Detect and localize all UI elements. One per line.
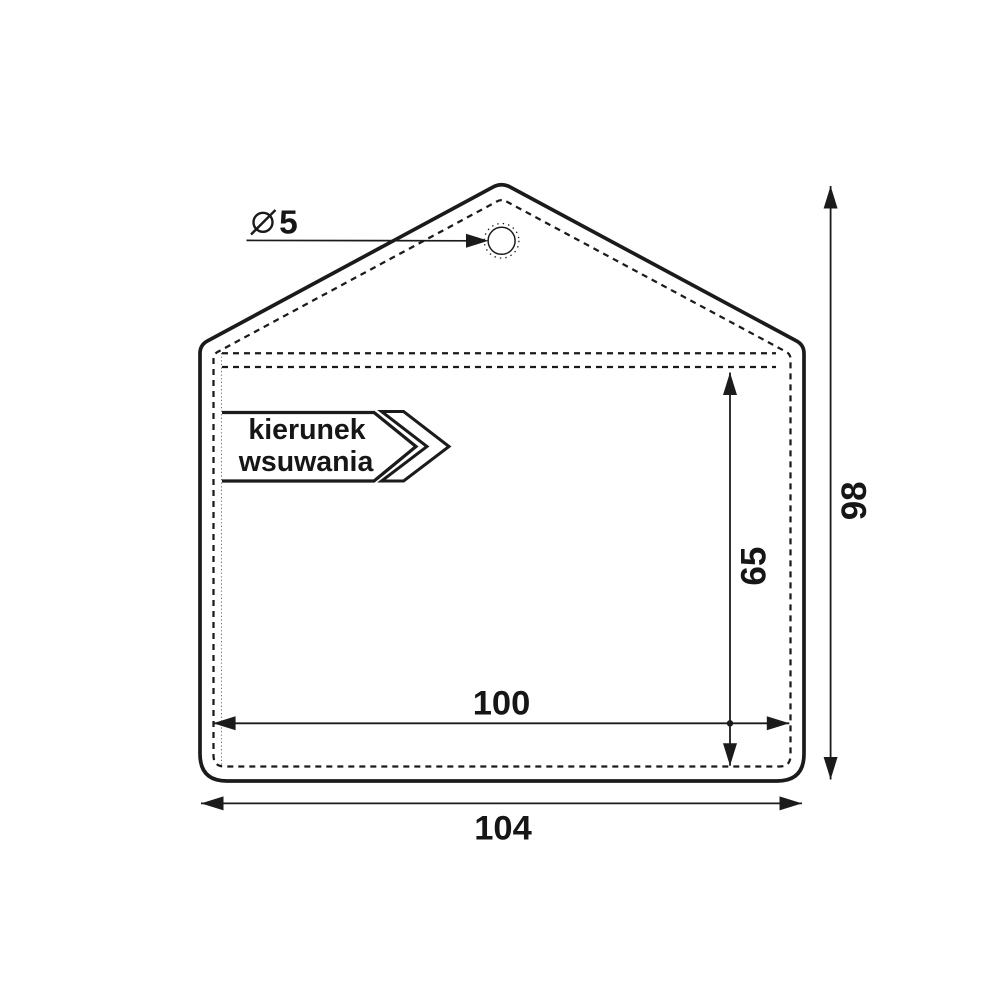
svg-text:65: 65 <box>734 547 773 586</box>
svg-text:kierunek: kierunek <box>248 414 365 446</box>
svg-text:100: 100 <box>473 685 531 723</box>
svg-text:98: 98 <box>835 481 874 520</box>
svg-text:104: 104 <box>474 810 532 848</box>
svg-text:wsuwania: wsuwania <box>238 446 375 478</box>
svg-text:5: 5 <box>279 205 298 242</box>
